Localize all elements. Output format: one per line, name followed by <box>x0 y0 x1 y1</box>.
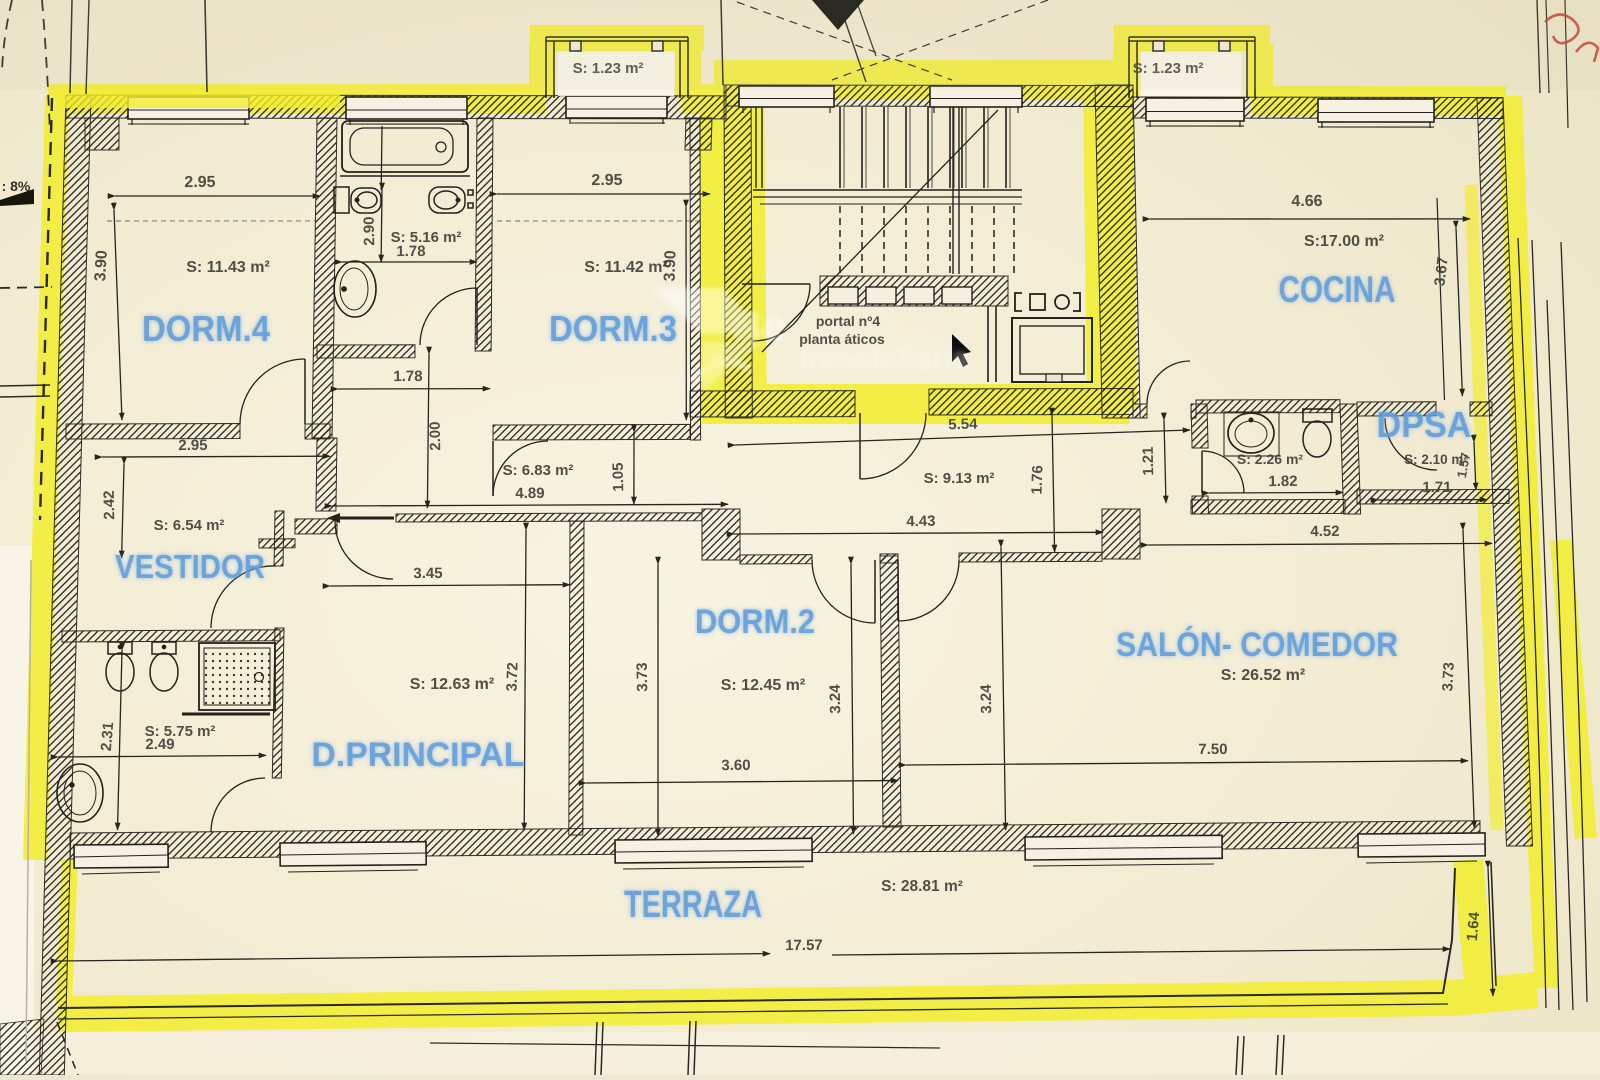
svg-text:2.95: 2.95 <box>591 172 622 189</box>
svg-text:S: 6.54 m²: S: 6.54 m² <box>154 517 225 534</box>
svg-text:4.52: 4.52 <box>1310 523 1339 540</box>
svg-text:1.71: 1.71 <box>1422 479 1451 496</box>
svg-text:DORM.4: DORM.4 <box>142 308 270 349</box>
svg-text:4.89: 4.89 <box>515 485 544 502</box>
svg-text:3.45: 3.45 <box>413 565 442 582</box>
svg-text:4.66: 4.66 <box>1291 193 1322 210</box>
svg-text:5.54: 5.54 <box>948 416 978 434</box>
svg-text:3.67: 3.67 <box>1431 256 1451 287</box>
svg-text:S: 5.16 m²: S: 5.16 m² <box>391 229 462 246</box>
svg-text:3.72: 3.72 <box>503 662 521 692</box>
svg-text:S: 9.13 m²: S: 9.13 m² <box>924 470 995 487</box>
svg-text:4.43: 4.43 <box>906 513 935 531</box>
svg-text:S: 26.52 m²: S: 26.52 m² <box>1221 667 1305 684</box>
svg-text:S: 2.10 m²: S: 2.10 m² <box>1404 452 1468 467</box>
svg-text:1.64: 1.64 <box>1464 911 1484 942</box>
svg-text:TERRAZA: TERRAZA <box>624 884 762 926</box>
svg-text:Be: Be <box>732 302 786 349</box>
svg-text:2.42: 2.42 <box>101 490 119 519</box>
svg-text:2.31: 2.31 <box>98 721 117 752</box>
svg-text:S: 12.63 m²: S: 12.63 m² <box>410 676 494 693</box>
svg-text:1.78: 1.78 <box>393 368 422 385</box>
svg-text:DPSA: DPSA <box>1377 404 1472 445</box>
svg-text:Inmobiliaria: Inmobiliaria <box>800 342 969 375</box>
svg-text:DORM.2: DORM.2 <box>695 603 815 641</box>
svg-text:3.73: 3.73 <box>634 662 652 691</box>
svg-text:2.95: 2.95 <box>178 437 207 454</box>
svg-text:1.05: 1.05 <box>610 462 628 491</box>
svg-text:SALÓN- COMEDOR: SALÓN- COMEDOR <box>1116 626 1398 664</box>
svg-text:S: 5.75 m²: S: 5.75 m² <box>145 723 216 740</box>
svg-text:S: 11.43 m²: S: 11.43 m² <box>186 259 270 276</box>
svg-text:S: 11.42 m²: S: 11.42 m² <box>584 259 668 276</box>
svg-text:S: 6.83 m²: S: 6.83 m² <box>503 462 574 479</box>
svg-text:S: 12.45 m²: S: 12.45 m² <box>721 677 805 694</box>
svg-text:: 8%: : 8% <box>2 178 31 194</box>
svg-text:2.00: 2.00 <box>427 421 445 450</box>
svg-text:3.24: 3.24 <box>978 684 996 714</box>
svg-text:3.24: 3.24 <box>827 684 845 714</box>
svg-text:S: 2.26 m²: S: 2.26 m² <box>1237 451 1303 467</box>
svg-text:2.90: 2.90 <box>361 216 379 245</box>
svg-text:2.95: 2.95 <box>184 174 215 191</box>
svg-text:COCINA: COCINA <box>1279 269 1396 310</box>
svg-text:D.PRINCIPAL: D.PRINCIPAL <box>312 736 525 774</box>
svg-text:3.73: 3.73 <box>1439 662 1458 692</box>
svg-text:7.50: 7.50 <box>1198 741 1227 758</box>
svg-text:VESTIDOR: VESTIDOR <box>115 548 265 585</box>
svg-text:3.60: 3.60 <box>721 757 750 774</box>
svg-text:DORM.3: DORM.3 <box>549 308 677 349</box>
svg-text:S: 28.81 m²: S: 28.81 m² <box>881 878 963 895</box>
svg-text:17.57: 17.57 <box>785 937 823 954</box>
svg-text:1.21: 1.21 <box>1140 446 1158 475</box>
svg-text:1.82: 1.82 <box>1268 473 1297 490</box>
svg-text:S:17.00 m²: S:17.00 m² <box>1304 233 1384 250</box>
svg-text:portal nº4: portal nº4 <box>816 313 880 329</box>
svg-text:1.76: 1.76 <box>1028 465 1046 495</box>
svg-text:3.90: 3.90 <box>92 250 111 282</box>
